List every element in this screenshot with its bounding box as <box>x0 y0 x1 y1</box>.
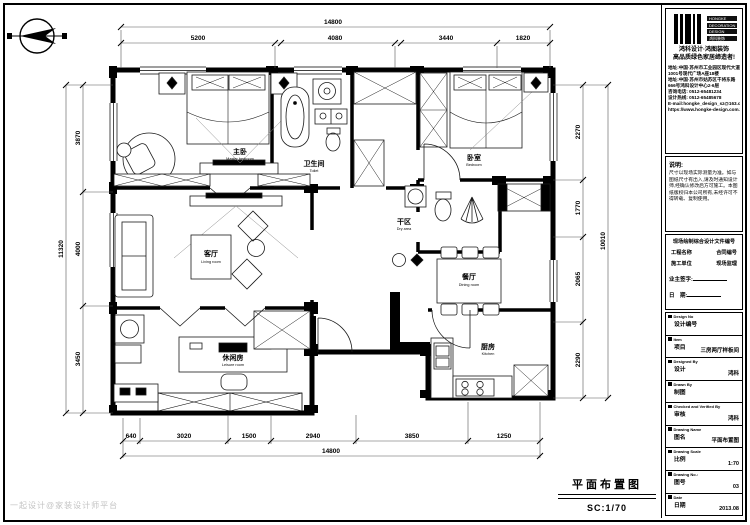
bullet-icon <box>668 450 672 454</box>
sign-field: 施工单位 <box>671 260 692 267</box>
dim-right-overall: 10010 <box>600 232 607 250</box>
side-tables <box>232 211 268 289</box>
owner-sign-label: 业主签字: <box>669 277 693 283</box>
dim-bottom-seg2: 3020 <box>177 433 192 440</box>
dining-set <box>437 247 501 315</box>
bullet-icon <box>668 315 672 319</box>
room-label-master: 主卧 <box>233 147 247 156</box>
room-label-kitchen: 厨房 <box>481 342 495 351</box>
room-label-bedroom2-en: Bedroom <box>466 163 481 167</box>
room-label-master-en: Master bedroom <box>226 157 254 161</box>
owner-sign-line <box>693 274 727 281</box>
dim-bottom-seg3: 1500 <box>242 433 257 440</box>
bay-window-study <box>158 393 302 411</box>
company-contacts: 地址:中国·苏州市工业园区现代大道 1001号现代广场A座18楼 地址:中国·苏… <box>668 65 740 113</box>
company-section: HONGKE DECORATION DESIGN 鸿科装饰 鸿科设计·鸿图装饰 … <box>665 8 743 154</box>
logo-line: DECORATION <box>707 23 737 28</box>
toilet-2 <box>435 192 451 221</box>
dim-bottom-seg1: 640 <box>126 433 137 440</box>
dim-right-seg4: 2290 <box>575 352 582 367</box>
dim-bottom-seg5: 3850 <box>405 433 420 440</box>
titleblock-rows: Design No 设计编号 Item 项目 三房两厅样板间 Designed … <box>665 312 743 516</box>
bedroom2-door <box>424 144 460 180</box>
date-sign-line <box>687 290 721 297</box>
date-sign-label: 日 期: <box>669 293 687 299</box>
bullet-icon <box>668 360 672 364</box>
study-cabinet <box>254 311 310 349</box>
contact-line: https://www.hongke-design.com.tw <box>668 107 740 113</box>
dim-right-seg2: 1770 <box>575 200 582 215</box>
bullet-icon <box>668 405 672 409</box>
room-label-dry-en: Dry area <box>397 227 412 231</box>
room-label-study-en: Leisure room <box>222 363 244 367</box>
room-label-study: 休闲房 <box>222 353 244 362</box>
wardrobe-bedroom2 <box>420 73 447 147</box>
floor-plan-drawing: 主卧 Master bedroom 卫生间 Toilet 卧室 Bedroom … <box>0 0 750 525</box>
notes-section: 说明: 尺寸以现场实际测量为准。如与图纸尺寸有出入,请及时通知设计师,经确认修改… <box>665 156 743 232</box>
bullet-icon <box>668 427 672 431</box>
entry-door-swing <box>318 318 352 352</box>
dim-top-seg2: 4080 <box>328 35 343 42</box>
logo-line: HONGKE <box>707 16 737 21</box>
dim-left-seg1: 3870 <box>75 130 82 145</box>
laundry-units <box>114 315 158 402</box>
dim-left-overall: 11320 <box>58 240 65 258</box>
row-designed-by: Designed By 设计 鸿科 <box>665 357 743 380</box>
washing-machine <box>313 79 341 104</box>
room-label-bath1: 卫生间 <box>304 159 325 168</box>
company-slogan-2: 高品质绿色家居缔造者! <box>668 54 740 62</box>
signature-title: 现场绘制综合设计文件编号 <box>669 238 739 245</box>
bullet-icon <box>668 495 672 499</box>
master-bed <box>187 72 269 144</box>
watermark: 一起设计@家装设计师平台 <box>10 500 118 511</box>
room-label-dining-en: Dining room <box>459 283 479 287</box>
dim-top-seg1: 5200 <box>191 35 206 42</box>
room-label-living-en: Living room <box>201 260 221 264</box>
dryer <box>405 186 426 207</box>
sofa <box>115 215 153 297</box>
north-arrow-icon <box>7 19 67 53</box>
hall-closet <box>354 72 416 186</box>
room-label-bath1-en: Toilet <box>310 169 320 173</box>
bathroom-sink <box>315 109 347 124</box>
dining-decor <box>393 254 424 267</box>
logo-line: 鸿科装饰 <box>707 36 737 41</box>
bullet-icon <box>668 337 672 341</box>
dim-right-seg1: 2270 <box>575 124 582 139</box>
drawing-title: 平面布置图 <box>556 476 658 492</box>
drawing-scale: SC:1/70 <box>556 503 658 513</box>
drawing-title-block: 平面布置图 SC:1/70 <box>556 476 658 513</box>
row-date: Date 日期 2013.08 <box>665 493 743 517</box>
room-label-dining: 餐厅 <box>461 272 476 281</box>
row-checked-by: Checked and Verified By 审核 鸿科 <box>665 402 743 425</box>
bullet-icon <box>668 472 672 476</box>
signature-section: 现场绘制综合设计文件编号 工程名称 合同编号 施工单位 现场监理 业主签字: 日… <box>665 234 743 310</box>
shower-head <box>461 197 483 223</box>
row-drawing-scale: Drawing Scale 比例 1:70 <box>665 447 743 470</box>
dim-top-seg4: 1820 <box>516 35 531 42</box>
dim-top-overall: 14800 <box>324 19 342 26</box>
dim-left-seg2: 4000 <box>75 241 82 256</box>
room-label-dry: 干区 <box>397 218 411 226</box>
dim-bottom-seg6: 1250 <box>497 433 512 440</box>
row-drawing-name: Drawing Name 图名 平面布置图 <box>665 425 743 448</box>
folding-doors-study <box>160 308 265 326</box>
dim-bottom-seg4: 2940 <box>306 433 321 440</box>
sign-field: 现场监理 <box>716 260 737 267</box>
notes-body: 尺寸以现场实际测量为准。如与图纸尺寸有出入,请及时通知设计师,经确认修改后方可施… <box>669 171 739 204</box>
toilet-1 <box>326 128 340 151</box>
sign-field: 合同编号 <box>716 249 737 256</box>
sign-field: 工程名称 <box>671 249 692 256</box>
fridge <box>514 365 548 396</box>
desk-chair <box>221 374 247 390</box>
wardrobe-strip-master <box>114 174 310 186</box>
room-label-kitchen-en: Kitchen <box>482 352 495 356</box>
bathtub <box>281 87 309 147</box>
dim-left-seg3: 3450 <box>75 351 82 366</box>
company-slogan-1: 鸿科设计·鸿图装饰 <box>668 46 740 54</box>
dim-bottom-overall: 14800 <box>322 448 340 455</box>
company-logo: HONGKE DECORATION DESIGN 鸿科装饰 <box>674 14 740 44</box>
bullet-icon <box>668 382 672 386</box>
room-label-bedroom2: 卧室 <box>467 153 481 162</box>
dim-right-seg3: 2065 <box>575 271 582 286</box>
row-drawing-no: Drawing No.: 图号 03 <box>665 470 743 493</box>
logo-bars-icon <box>674 14 703 44</box>
sideboard-cabinet <box>498 184 550 211</box>
row-design-no: Design No 设计编号 <box>665 312 743 335</box>
title-underline <box>558 494 656 499</box>
dim-top-seg3: 3440 <box>439 35 454 42</box>
row-item: Item 项目 三房两厅样板间 <box>665 335 743 358</box>
nightstand-bedroom2 <box>524 73 548 92</box>
title-panel: HONGKE DECORATION DESIGN 鸿科装饰 鸿科设计·鸿图装饰 … <box>661 5 745 518</box>
room-label-living: 客厅 <box>203 249 218 258</box>
row-drawn-by: Drawn By 制图 <box>665 380 743 403</box>
stove <box>456 379 494 396</box>
notes-title: 说明: <box>669 160 739 169</box>
logo-line: DESIGN <box>707 29 737 34</box>
